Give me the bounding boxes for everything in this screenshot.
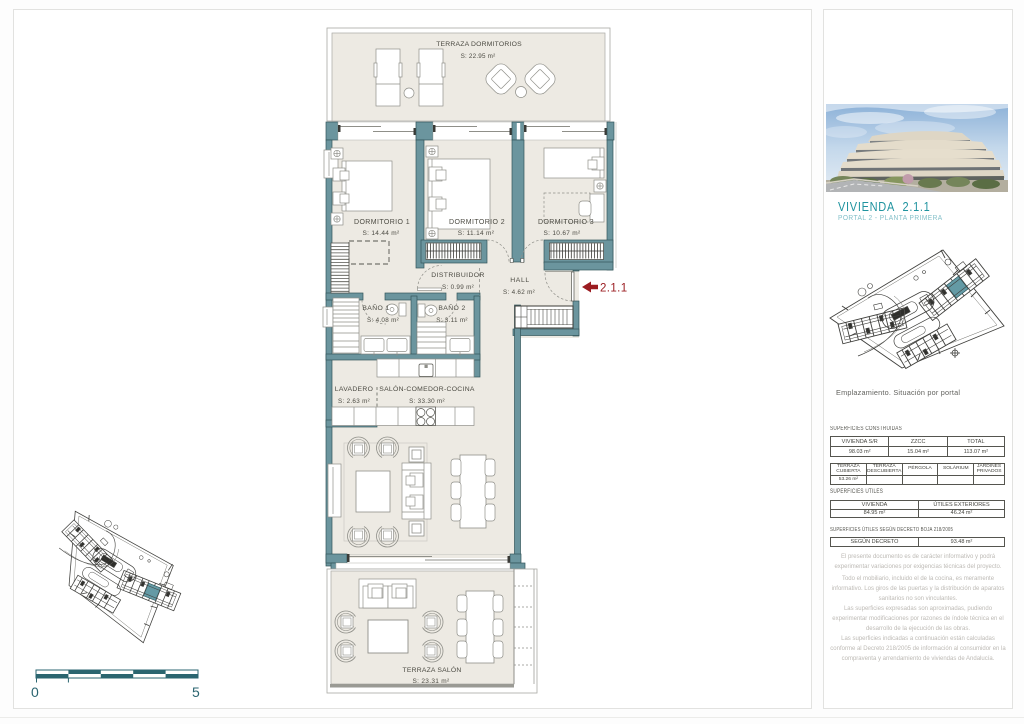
svg-text:0: 0 <box>31 684 39 700</box>
svg-text:2.1.1: 2.1.1 <box>600 283 628 295</box>
svg-text:DISTRIBUIDOR: DISTRIBUIDOR <box>431 272 485 279</box>
svg-text:S: 22.95 m²: S: 22.95 m² <box>461 53 496 60</box>
svg-text:S: 23.31 m²: S: 23.31 m² <box>413 678 450 685</box>
svg-text:BAÑO 2: BAÑO 2 <box>438 303 465 312</box>
svg-text:BAÑO 1: BAÑO 1 <box>362 303 389 312</box>
svg-text:S: 10.67 m²: S: 10.67 m² <box>544 230 581 237</box>
svg-text:S: 2.63 m²: S: 2.63 m² <box>338 398 370 405</box>
svg-text:SALÓN-COMEDOR-COCINA: SALÓN-COMEDOR-COCINA <box>379 384 475 393</box>
svg-text:DORMITORIO 2: DORMITORIO 2 <box>449 219 505 226</box>
svg-text:S: 14.44 m²: S: 14.44 m² <box>363 230 400 237</box>
svg-text:5: 5 <box>192 684 200 700</box>
svg-text:TERRAZA SALÓN: TERRAZA SALÓN <box>403 665 462 674</box>
svg-text:HALL: HALL <box>510 277 529 284</box>
svg-text:S: 0.99 m²: S: 0.99 m² <box>442 284 474 291</box>
svg-text:LAVADERO: LAVADERO <box>335 386 373 393</box>
svg-text:S: 4.08 m²: S: 4.08 m² <box>367 317 399 324</box>
svg-text:S: 11.14 m²: S: 11.14 m² <box>458 230 495 237</box>
svg-text:DORMITORIO 3: DORMITORIO 3 <box>538 219 594 226</box>
svg-text:S: 33.30 m²: S: 33.30 m² <box>409 398 445 405</box>
svg-text:TERRAZA DORMITORIOS: TERRAZA DORMITORIOS <box>436 41 522 48</box>
svg-text:DORMITORIO 1: DORMITORIO 1 <box>354 219 410 226</box>
svg-text:S: 4.62 m²: S: 4.62 m² <box>503 289 535 296</box>
